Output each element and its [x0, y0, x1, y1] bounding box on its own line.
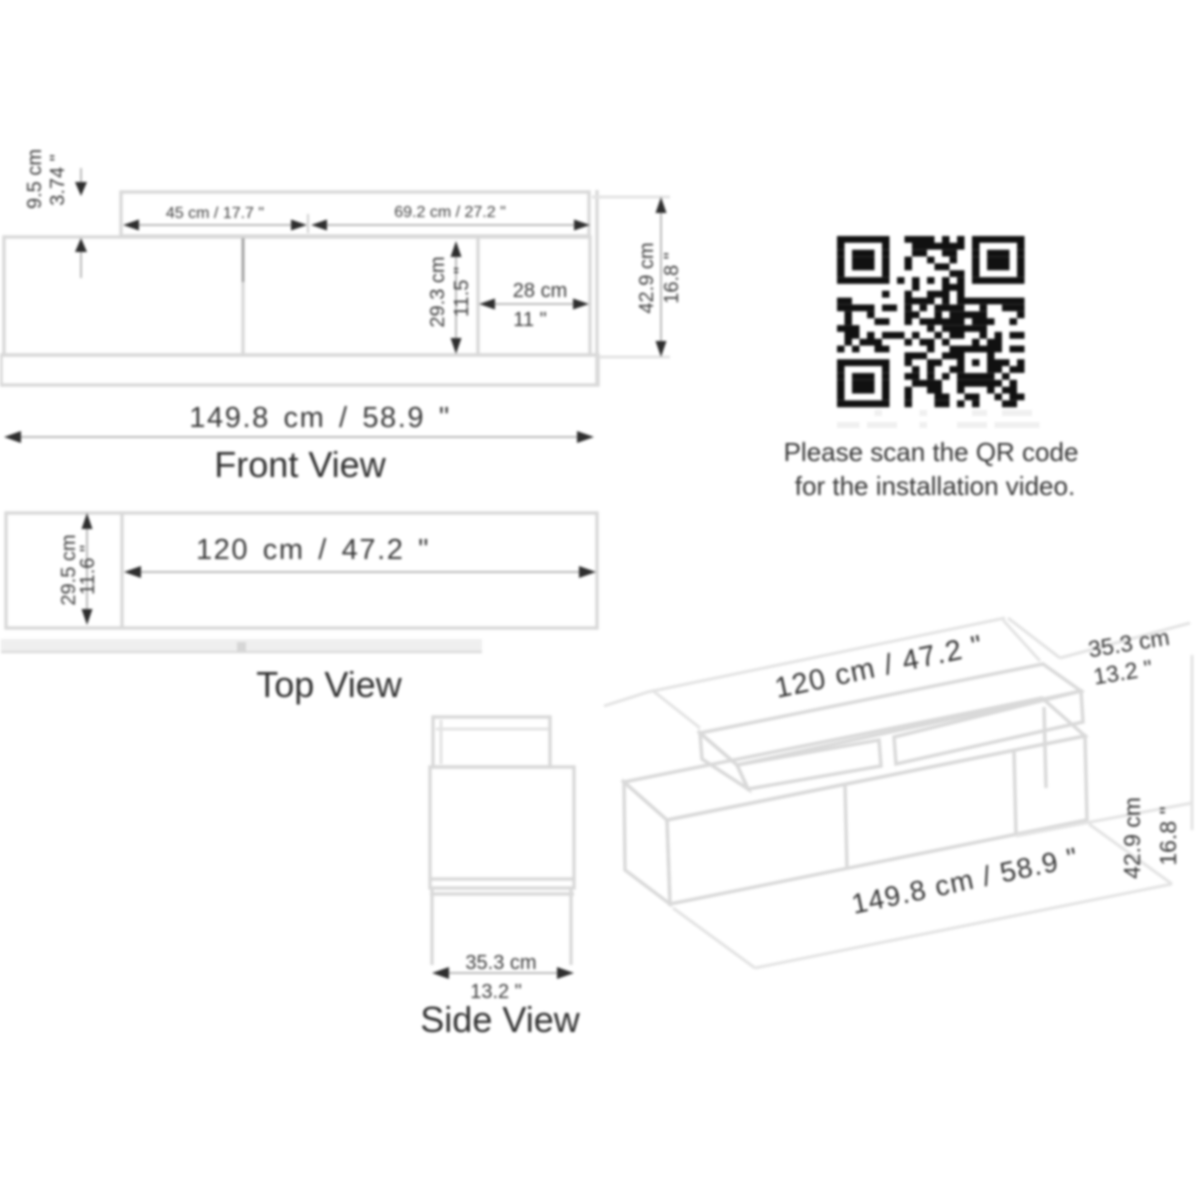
svg-text:149.8 cm / 58.9 ": 149.8 cm / 58.9 "	[189, 402, 450, 434]
svg-text:11.5 ": 11.5 "	[451, 267, 473, 317]
svg-text:Top View: Top View	[256, 664, 402, 705]
svg-text:Side View: Side View	[420, 999, 580, 1040]
svg-text:45 cm / 17.7 ": 45 cm / 17.7 "	[166, 205, 264, 222]
svg-text:11 ": 11 "	[513, 309, 546, 331]
svg-text:16.8 ": 16.8 "	[661, 252, 683, 304]
svg-text:Front View: Front View	[214, 444, 386, 485]
svg-text:16.8 ": 16.8 "	[1155, 806, 1181, 865]
svg-text:11.6 ": 11.6 "	[77, 545, 99, 595]
svg-text:for the installation video.: for the installation video.	[795, 471, 1075, 501]
svg-text:42.9 cm: 42.9 cm	[1119, 797, 1145, 879]
svg-text:Please scan the QR code: Please scan the QR code	[784, 437, 1079, 467]
svg-text:42.9 cm: 42.9 cm	[636, 242, 658, 313]
svg-text:69.2 cm / 27.2 ": 69.2 cm / 27.2 "	[394, 204, 506, 221]
svg-text:9.5 cm: 9.5 cm	[24, 149, 46, 209]
svg-text:3.74 ": 3.74 "	[47, 154, 69, 206]
svg-text:120 cm / 47.2 ": 120 cm / 47.2 "	[196, 534, 430, 566]
svg-text:35.3 cm: 35.3 cm	[465, 952, 536, 974]
svg-text:28 cm: 28 cm	[513, 280, 567, 302]
svg-text:29.3 cm: 29.3 cm	[427, 256, 449, 327]
